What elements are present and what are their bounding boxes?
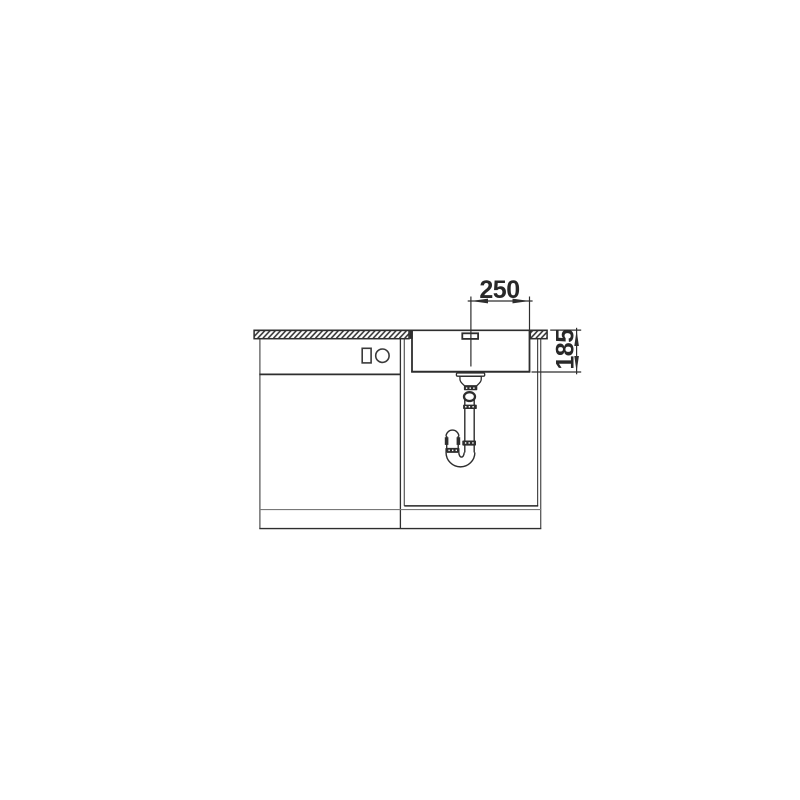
svg-text:185: 185 [551, 329, 579, 370]
svg-text:250: 250 [479, 276, 519, 304]
